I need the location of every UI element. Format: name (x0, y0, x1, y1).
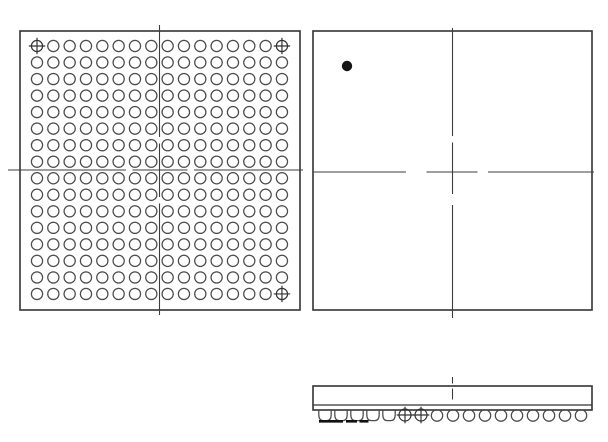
solder-ball (146, 189, 157, 200)
solder-ball (178, 222, 189, 233)
solder-ball (31, 272, 42, 283)
solder-ball (129, 255, 140, 266)
solder-ball (162, 173, 173, 184)
solder-ball (113, 222, 124, 233)
solder-ball (129, 156, 140, 167)
solder-ball (162, 272, 173, 283)
solder-ball (146, 90, 157, 101)
solder-ball (80, 140, 91, 151)
solder-ball-side (575, 410, 586, 421)
solder-ball (178, 123, 189, 134)
solder-ball (195, 40, 206, 51)
solder-ball (244, 255, 255, 266)
solder-ball (146, 107, 157, 118)
solder-ball (80, 40, 91, 51)
solder-ball (178, 156, 189, 167)
solder-ball (227, 173, 238, 184)
solder-ball (244, 222, 255, 233)
solder-ball (80, 173, 91, 184)
solder-ball (146, 272, 157, 283)
solder-ball (195, 57, 206, 68)
solder-ball (211, 107, 222, 118)
solder-ball (64, 107, 75, 118)
solder-ball (244, 73, 255, 84)
solder-ball (276, 189, 287, 200)
solder-ball (195, 140, 206, 151)
solder-ball (195, 222, 206, 233)
solder-ball (244, 40, 255, 51)
solder-ball (244, 57, 255, 68)
solder-ball (276, 255, 287, 266)
solder-ball (129, 57, 140, 68)
solder-ball-side (479, 410, 490, 421)
solder-ball (244, 173, 255, 184)
collapsed-ball (367, 410, 379, 420)
solder-ball-side (463, 410, 474, 421)
solder-ball (64, 255, 75, 266)
pin1-indicator-dot (342, 61, 351, 70)
solder-ball (276, 222, 287, 233)
solder-ball (227, 239, 238, 250)
solder-ball (276, 173, 287, 184)
solder-ball (80, 107, 91, 118)
solder-ball (162, 57, 173, 68)
solder-ball (113, 90, 124, 101)
solder-ball (48, 189, 59, 200)
solder-ball (162, 73, 173, 84)
solder-ball (113, 239, 124, 250)
solder-ball (162, 123, 173, 134)
solder-ball (64, 73, 75, 84)
solder-ball-side (511, 410, 522, 421)
solder-ball (64, 239, 75, 250)
solder-ball (227, 272, 238, 283)
solder-ball (260, 123, 271, 134)
solder-ball (31, 206, 42, 217)
solder-ball (64, 156, 75, 167)
solder-ball (48, 206, 59, 217)
solder-ball (227, 57, 238, 68)
solder-ball (276, 57, 287, 68)
solder-ball (48, 123, 59, 134)
solder-ball (97, 189, 108, 200)
solder-ball (162, 140, 173, 151)
solder-ball (97, 173, 108, 184)
solder-ball (276, 239, 287, 250)
solder-ball (162, 90, 173, 101)
solder-ball (97, 288, 108, 299)
solder-ball (113, 73, 124, 84)
solder-ball (178, 239, 189, 250)
solder-ball (31, 173, 42, 184)
solder-ball (97, 206, 108, 217)
solder-ball (244, 189, 255, 200)
solder-ball (244, 107, 255, 118)
solder-ball (227, 107, 238, 118)
solder-ball (195, 173, 206, 184)
solder-ball (162, 255, 173, 266)
solder-ball (113, 57, 124, 68)
solder-ball (195, 239, 206, 250)
solder-ball (195, 255, 206, 266)
side-view (313, 377, 592, 423)
top-view (313, 28, 594, 318)
solder-ball (260, 222, 271, 233)
solder-ball (129, 239, 140, 250)
solder-ball (178, 173, 189, 184)
solder-ball (178, 57, 189, 68)
solder-ball (211, 189, 222, 200)
solder-ball (211, 239, 222, 250)
solder-ball-side (559, 410, 570, 421)
solder-ball (195, 288, 206, 299)
solder-ball (113, 107, 124, 118)
solder-ball (31, 255, 42, 266)
solder-ball (244, 90, 255, 101)
solder-ball (48, 107, 59, 118)
solder-ball (48, 40, 59, 51)
solder-ball (31, 156, 42, 167)
solder-ball (113, 156, 124, 167)
solder-ball (80, 90, 91, 101)
solder-ball (260, 288, 271, 299)
package-drawing-svg (0, 0, 608, 442)
solder-ball (31, 57, 42, 68)
solder-ball (97, 57, 108, 68)
solder-ball (146, 73, 157, 84)
solder-ball (48, 57, 59, 68)
solder-ball (31, 222, 42, 233)
solder-ball (80, 57, 91, 68)
solder-ball (227, 255, 238, 266)
solder-ball (162, 206, 173, 217)
solder-ball (227, 140, 238, 151)
solder-ball (129, 222, 140, 233)
solder-ball (260, 206, 271, 217)
solder-ball (31, 288, 42, 299)
solder-ball (97, 107, 108, 118)
solder-ball (48, 239, 59, 250)
solder-ball (244, 272, 255, 283)
solder-ball (31, 90, 42, 101)
solder-ball (211, 156, 222, 167)
solder-ball (64, 40, 75, 51)
solder-ball (276, 90, 287, 101)
solder-ball (276, 156, 287, 167)
solder-ball (48, 272, 59, 283)
solder-ball (195, 189, 206, 200)
solder-ball (227, 206, 238, 217)
solder-ball (211, 173, 222, 184)
collapsed-ball (335, 410, 347, 420)
solder-ball (146, 239, 157, 250)
solder-ball (97, 272, 108, 283)
solder-ball (80, 239, 91, 250)
solder-ball (211, 222, 222, 233)
solder-ball (97, 156, 108, 167)
solder-ball (97, 40, 108, 51)
solder-ball (244, 288, 255, 299)
solder-ball (178, 206, 189, 217)
solder-ball (211, 57, 222, 68)
solder-ball (97, 140, 108, 151)
solder-ball (48, 73, 59, 84)
solder-ball (260, 90, 271, 101)
solder-ball-side (447, 410, 458, 421)
solder-ball (195, 90, 206, 101)
solder-ball (97, 239, 108, 250)
solder-ball (64, 90, 75, 101)
solder-ball (80, 123, 91, 134)
solder-ball (48, 255, 59, 266)
solder-ball (260, 156, 271, 167)
solder-ball (146, 156, 157, 167)
solder-ball (227, 222, 238, 233)
solder-ball (276, 73, 287, 84)
solder-ball (113, 288, 124, 299)
solder-ball (129, 73, 140, 84)
solder-ball (80, 206, 91, 217)
solder-ball (195, 107, 206, 118)
solder-ball (260, 255, 271, 266)
solder-ball (97, 73, 108, 84)
solder-ball (260, 189, 271, 200)
solder-ball (129, 90, 140, 101)
solder-ball (64, 189, 75, 200)
solder-ball (178, 288, 189, 299)
solder-ball (227, 73, 238, 84)
solder-ball (178, 90, 189, 101)
solder-ball (48, 140, 59, 151)
solder-ball (211, 90, 222, 101)
solder-ball (162, 40, 173, 51)
solder-ball (97, 123, 108, 134)
package-drawing-canvas (0, 0, 608, 442)
solder-ball (113, 255, 124, 266)
solder-ball (211, 73, 222, 84)
solder-ball (244, 123, 255, 134)
solder-ball (260, 57, 271, 68)
solder-ball (195, 206, 206, 217)
solder-ball (146, 40, 157, 51)
solder-ball (195, 156, 206, 167)
solder-ball (146, 206, 157, 217)
solder-ball (195, 123, 206, 134)
solder-ball (211, 255, 222, 266)
solder-ball (129, 173, 140, 184)
solder-ball (178, 272, 189, 283)
solder-ball (260, 107, 271, 118)
solder-ball (31, 107, 42, 118)
solder-ball (146, 140, 157, 151)
solder-ball (227, 40, 238, 51)
solder-ball (211, 140, 222, 151)
solder-ball (244, 156, 255, 167)
solder-ball (31, 239, 42, 250)
solder-ball (162, 156, 173, 167)
solder-ball (211, 272, 222, 283)
solder-ball (64, 272, 75, 283)
solder-ball (211, 123, 222, 134)
solder-ball (195, 272, 206, 283)
solder-ball (260, 272, 271, 283)
solder-ball (31, 140, 42, 151)
solder-ball (64, 173, 75, 184)
solder-ball (129, 206, 140, 217)
solder-ball (80, 288, 91, 299)
solder-ball (227, 288, 238, 299)
solder-ball (80, 73, 91, 84)
solder-ball (227, 90, 238, 101)
solder-ball (178, 73, 189, 84)
collapsed-ball (383, 410, 395, 420)
solder-ball (211, 40, 222, 51)
solder-ball (113, 123, 124, 134)
solder-ball (146, 222, 157, 233)
solder-ball (80, 255, 91, 266)
solder-ball (129, 40, 140, 51)
solder-ball (260, 73, 271, 84)
solder-ball (113, 140, 124, 151)
solder-ball (80, 222, 91, 233)
solder-ball (31, 123, 42, 134)
solder-ball (227, 156, 238, 167)
solder-ball (146, 255, 157, 266)
solder-ball (64, 206, 75, 217)
solder-ball (260, 173, 271, 184)
solder-ball-side (527, 410, 538, 421)
solder-ball (244, 239, 255, 250)
solder-ball (162, 222, 173, 233)
solder-ball-side (495, 410, 506, 421)
solder-ball (244, 140, 255, 151)
solder-ball (113, 40, 124, 51)
solder-ball (276, 206, 287, 217)
solder-ball (80, 189, 91, 200)
solder-ball (227, 189, 238, 200)
solder-ball (113, 206, 124, 217)
solder-ball (80, 272, 91, 283)
solder-ball-side (431, 410, 442, 421)
solder-ball (162, 107, 173, 118)
solder-ball (178, 107, 189, 118)
solder-ball (113, 189, 124, 200)
solder-ball (146, 123, 157, 134)
solder-ball (146, 57, 157, 68)
solder-ball-side (543, 410, 554, 421)
solder-ball (64, 123, 75, 134)
solder-ball (260, 40, 271, 51)
solder-ball (178, 189, 189, 200)
solder-ball (64, 57, 75, 68)
solder-ball (48, 156, 59, 167)
solder-ball (227, 123, 238, 134)
solder-ball (211, 288, 222, 299)
solder-ball (276, 107, 287, 118)
solder-ball (178, 140, 189, 151)
solder-ball (97, 90, 108, 101)
solder-ball (129, 140, 140, 151)
solder-ball (113, 173, 124, 184)
solder-ball (129, 123, 140, 134)
solder-ball (97, 222, 108, 233)
solder-ball (48, 222, 59, 233)
solder-ball (113, 272, 124, 283)
solder-ball (276, 272, 287, 283)
solder-ball (178, 255, 189, 266)
solder-ball (64, 140, 75, 151)
solder-ball (129, 288, 140, 299)
solder-ball (276, 140, 287, 151)
solder-ball (146, 173, 157, 184)
bottom-view-ball-grid (8, 25, 303, 315)
solder-ball (260, 239, 271, 250)
collapsed-ball (351, 410, 363, 420)
solder-ball (260, 140, 271, 151)
solder-ball (129, 272, 140, 283)
solder-ball (244, 206, 255, 217)
solder-ball (48, 90, 59, 101)
solder-ball (178, 40, 189, 51)
solder-ball (211, 206, 222, 217)
solder-ball (129, 107, 140, 118)
solder-ball (146, 288, 157, 299)
solder-ball (276, 123, 287, 134)
solder-ball (129, 189, 140, 200)
solder-ball (31, 73, 42, 84)
solder-ball (64, 288, 75, 299)
solder-ball (162, 189, 173, 200)
solder-ball (48, 173, 59, 184)
solder-ball (64, 222, 75, 233)
solder-ball (97, 255, 108, 266)
solder-ball (80, 156, 91, 167)
solder-ball (162, 288, 173, 299)
solder-ball (162, 239, 173, 250)
solder-ball (31, 189, 42, 200)
solder-ball (195, 73, 206, 84)
collapsed-ball (319, 410, 331, 420)
solder-ball (48, 288, 59, 299)
